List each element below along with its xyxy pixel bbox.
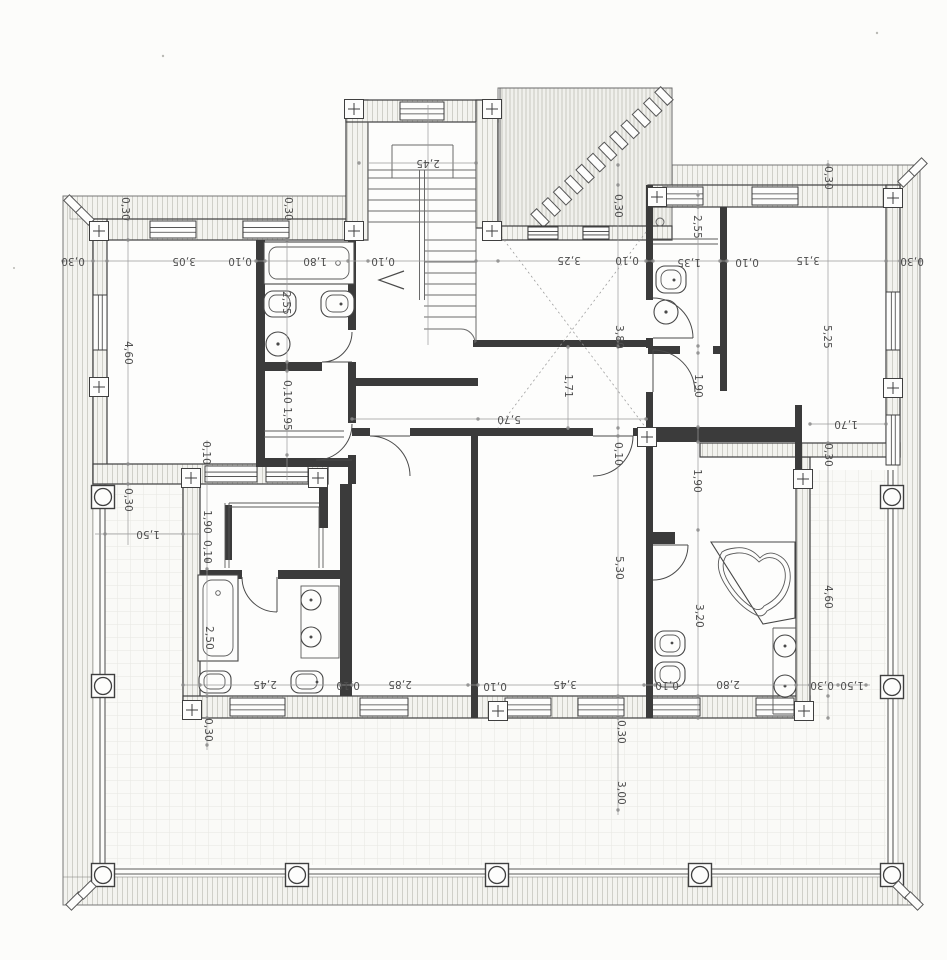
dimension-dot <box>285 360 288 363</box>
wall-segment <box>720 353 727 391</box>
dimension-dot <box>826 694 829 697</box>
dimension-dot <box>836 683 839 686</box>
dimension-label: 3,45 <box>553 678 577 690</box>
dimension-dot <box>254 259 257 262</box>
dimension-label: 2,85 <box>388 678 412 690</box>
dimension-dot <box>474 259 477 262</box>
dimension-dot <box>696 716 699 719</box>
dimension-dot <box>884 259 887 262</box>
terrace-edge-band <box>898 165 920 905</box>
terrace-floor <box>810 470 886 865</box>
dimension-dot <box>566 426 569 429</box>
dimension-label: 1,70 <box>834 418 858 430</box>
wall-segment <box>256 458 352 467</box>
dimension-dot <box>103 532 106 535</box>
wall-segment <box>476 100 498 228</box>
dimension-dot <box>696 205 699 208</box>
dimension-dot <box>205 567 208 570</box>
sink-icon <box>664 310 667 313</box>
dimension-dot <box>263 259 266 262</box>
wall-segment <box>319 485 328 528</box>
sink-icon <box>266 332 290 356</box>
terrace-edge-band <box>63 196 93 905</box>
dimension-dot <box>350 417 353 420</box>
window-icon <box>360 698 408 716</box>
dimension-label: 3,15 <box>796 254 820 266</box>
dimension-label: 5,30 <box>613 556 625 580</box>
dimension-label: 1,80 <box>303 255 327 267</box>
dimension-label: 1,35 <box>677 256 701 268</box>
dimension-label: 0,30 <box>900 255 924 267</box>
wall-segment <box>278 570 340 579</box>
dimension-dot <box>696 528 699 531</box>
dimension-dot <box>366 259 369 262</box>
dimension-dot <box>718 259 721 262</box>
dimension-dot <box>285 238 288 241</box>
dimension-dot <box>808 422 811 425</box>
dimension-dot <box>696 425 699 428</box>
toilet-icon <box>673 279 676 282</box>
wall-segment <box>653 532 675 544</box>
bidet-icon <box>655 631 685 656</box>
terrace-floor <box>105 718 886 865</box>
floor-plan-drawing: 0,300,300,300,300,303,050,101,800,103,25… <box>0 0 947 960</box>
column-icon <box>884 489 901 506</box>
dimension-label: 4,60 <box>122 341 134 365</box>
wall-segment <box>348 455 356 484</box>
dimension-dot <box>696 344 699 347</box>
dimension-dot <box>126 238 129 241</box>
dimension-label: 2,55 <box>691 215 703 239</box>
wall-segment <box>256 362 322 371</box>
window-icon <box>528 227 558 239</box>
dimension-dot <box>285 453 288 456</box>
dimension-dot <box>616 426 619 429</box>
dimension-dot <box>198 683 201 686</box>
dimension-dot <box>466 683 469 686</box>
double-sink-counter <box>310 636 313 639</box>
dimension-label: 3,20 <box>693 604 705 628</box>
bidet-icon <box>671 642 674 645</box>
window-icon <box>400 102 444 120</box>
dimension-dot <box>285 369 288 372</box>
dimension-label: 5,70 <box>497 413 521 425</box>
dimension-dot <box>616 808 619 811</box>
dimension-dot <box>476 417 479 420</box>
scanned-floor-plan-page: 0,300,300,300,300,303,050,101,800,103,25… <box>0 0 947 960</box>
wall-segment <box>93 219 355 240</box>
dimension-label: 1,50 <box>136 528 160 540</box>
dimension-label: 0,10 <box>336 679 360 691</box>
dimension-dot <box>725 259 728 262</box>
dimension-dot <box>642 683 645 686</box>
wall-segment <box>256 371 265 467</box>
dimension-dot <box>696 193 699 196</box>
dimension-label: 2,45 <box>253 678 277 690</box>
dimension-label: 2,50 <box>203 626 215 650</box>
dimension-label: 1,95 <box>281 407 293 431</box>
dimension-dot <box>616 434 619 437</box>
column-icon <box>95 678 112 695</box>
dimension-dot <box>357 161 360 164</box>
dimension-dot <box>696 440 699 443</box>
dimension-label: 1,50 <box>840 679 864 691</box>
dimension-label: 3,00 <box>615 781 627 805</box>
dimension-dot <box>476 683 479 686</box>
dimension-label: 0,30 <box>810 679 834 691</box>
dimension-label: 0,30 <box>615 720 627 744</box>
window-icon <box>578 698 624 716</box>
dimension-label: 0,30 <box>822 166 834 190</box>
window-icon <box>583 227 609 239</box>
toilet-icon <box>199 671 231 693</box>
window-icon <box>205 466 257 482</box>
terrace-edge-band <box>70 196 346 219</box>
window-icon <box>230 698 285 716</box>
dimension-label: 3,80 <box>613 325 625 349</box>
wall-segment <box>471 436 478 718</box>
dimension-label: 0,30 <box>612 194 624 218</box>
window-icon <box>886 292 900 350</box>
dimension-dot <box>616 694 619 697</box>
dimension-label: 0,10 <box>655 679 679 691</box>
dimension-label: 1,90 <box>692 374 704 398</box>
dimension-dot <box>126 462 129 465</box>
terrace-edge-band <box>672 165 898 185</box>
dimension-dot <box>696 351 699 354</box>
dimension-dot <box>616 163 619 166</box>
wall-segment <box>348 362 356 423</box>
dimension-dot <box>91 259 94 262</box>
dimension-dot <box>644 417 647 420</box>
sink-icon <box>276 342 279 345</box>
window-icon <box>752 187 798 205</box>
dimension-label: 0,30 <box>282 197 294 221</box>
toilet-icon <box>340 303 343 306</box>
column-icon <box>95 489 112 506</box>
dimension-label: 5,25 <box>821 325 833 349</box>
dimension-label: 0,10 <box>281 380 293 404</box>
wall-segment <box>795 405 802 480</box>
toilet-icon <box>291 671 323 693</box>
dimension-dot <box>696 694 699 697</box>
wall-segment <box>410 428 593 436</box>
dimension-dot <box>616 183 619 186</box>
dimension-label: 0,30 <box>122 488 134 512</box>
dimension-dot <box>205 743 208 746</box>
column-icon <box>95 867 112 884</box>
wall-segment <box>340 484 352 696</box>
dimension-dot <box>181 683 184 686</box>
dimension-label: 0,30 <box>822 443 834 467</box>
dimension-label: 0,30 <box>61 255 85 267</box>
wall-segment <box>183 478 200 718</box>
dimension-label: 0,10 <box>228 255 252 267</box>
dimension-label: 0,10 <box>735 256 759 268</box>
wall-segment <box>352 378 478 386</box>
dimension-dot <box>205 694 208 697</box>
dimension-dot <box>884 422 887 425</box>
wall-segment <box>352 428 370 436</box>
window-icon <box>93 295 107 350</box>
dimension-label: 1,90 <box>201 510 213 534</box>
dimension-label: 0,10 <box>371 255 395 267</box>
wall-segment <box>93 219 107 484</box>
wall-segment <box>653 427 795 442</box>
dimension-label: 2,45 <box>416 157 440 169</box>
window-icon <box>648 698 700 716</box>
dimension-dot <box>651 259 654 262</box>
window-icon <box>886 415 900 465</box>
dimension-dot <box>566 345 569 348</box>
dimension-label: 0,10 <box>483 680 507 692</box>
dimension-label: 0,30 <box>202 718 214 742</box>
dimension-dot <box>794 683 797 686</box>
dimension-label: 4,60 <box>822 585 834 609</box>
column-icon <box>884 679 901 696</box>
dimension-label: 2,80 <box>716 678 740 690</box>
column-icon <box>289 867 306 884</box>
wall-segment <box>473 340 653 347</box>
wall-segment <box>720 207 727 353</box>
scan-speckles <box>876 32 878 34</box>
column-icon <box>489 867 506 884</box>
window-icon <box>756 698 794 716</box>
dimension-dot <box>105 259 108 262</box>
wall-segment <box>713 346 727 354</box>
dimension-dot <box>181 532 184 535</box>
column-icon <box>692 867 709 884</box>
dimension-label: 1,90 <box>691 469 703 493</box>
dimension-label: 0,30 <box>119 197 131 221</box>
dimension-dot <box>474 161 477 164</box>
dimension-label: 0,10 <box>201 540 213 564</box>
scan-speckles <box>13 267 15 269</box>
toilet-icon <box>321 291 354 317</box>
window-icon <box>505 698 551 716</box>
double-sink-counter <box>784 645 787 648</box>
dimension-label: 3,05 <box>172 255 196 267</box>
dimension-label: 1,71 <box>562 374 574 398</box>
dimension-dot <box>126 482 129 485</box>
double-sink-counter <box>310 599 313 602</box>
dimension-dot <box>826 716 829 719</box>
scan-speckles <box>162 55 164 57</box>
dimension-dot <box>644 259 647 262</box>
wall-segment <box>796 457 810 718</box>
toilet-icon <box>316 681 319 684</box>
window-icon <box>243 221 289 238</box>
dimension-label: 0,10 <box>200 441 212 465</box>
dimension-dot <box>346 259 349 262</box>
window-icon <box>150 221 196 238</box>
dimension-label: 0,10 <box>612 442 624 466</box>
toilet-icon <box>656 266 686 293</box>
wall-segment <box>225 505 232 560</box>
dimension-label: 2,55 <box>280 291 292 315</box>
dimension-dot <box>496 259 499 262</box>
dimension-label: 3,25 <box>557 254 581 266</box>
dimension-label: 0,10 <box>615 254 639 266</box>
